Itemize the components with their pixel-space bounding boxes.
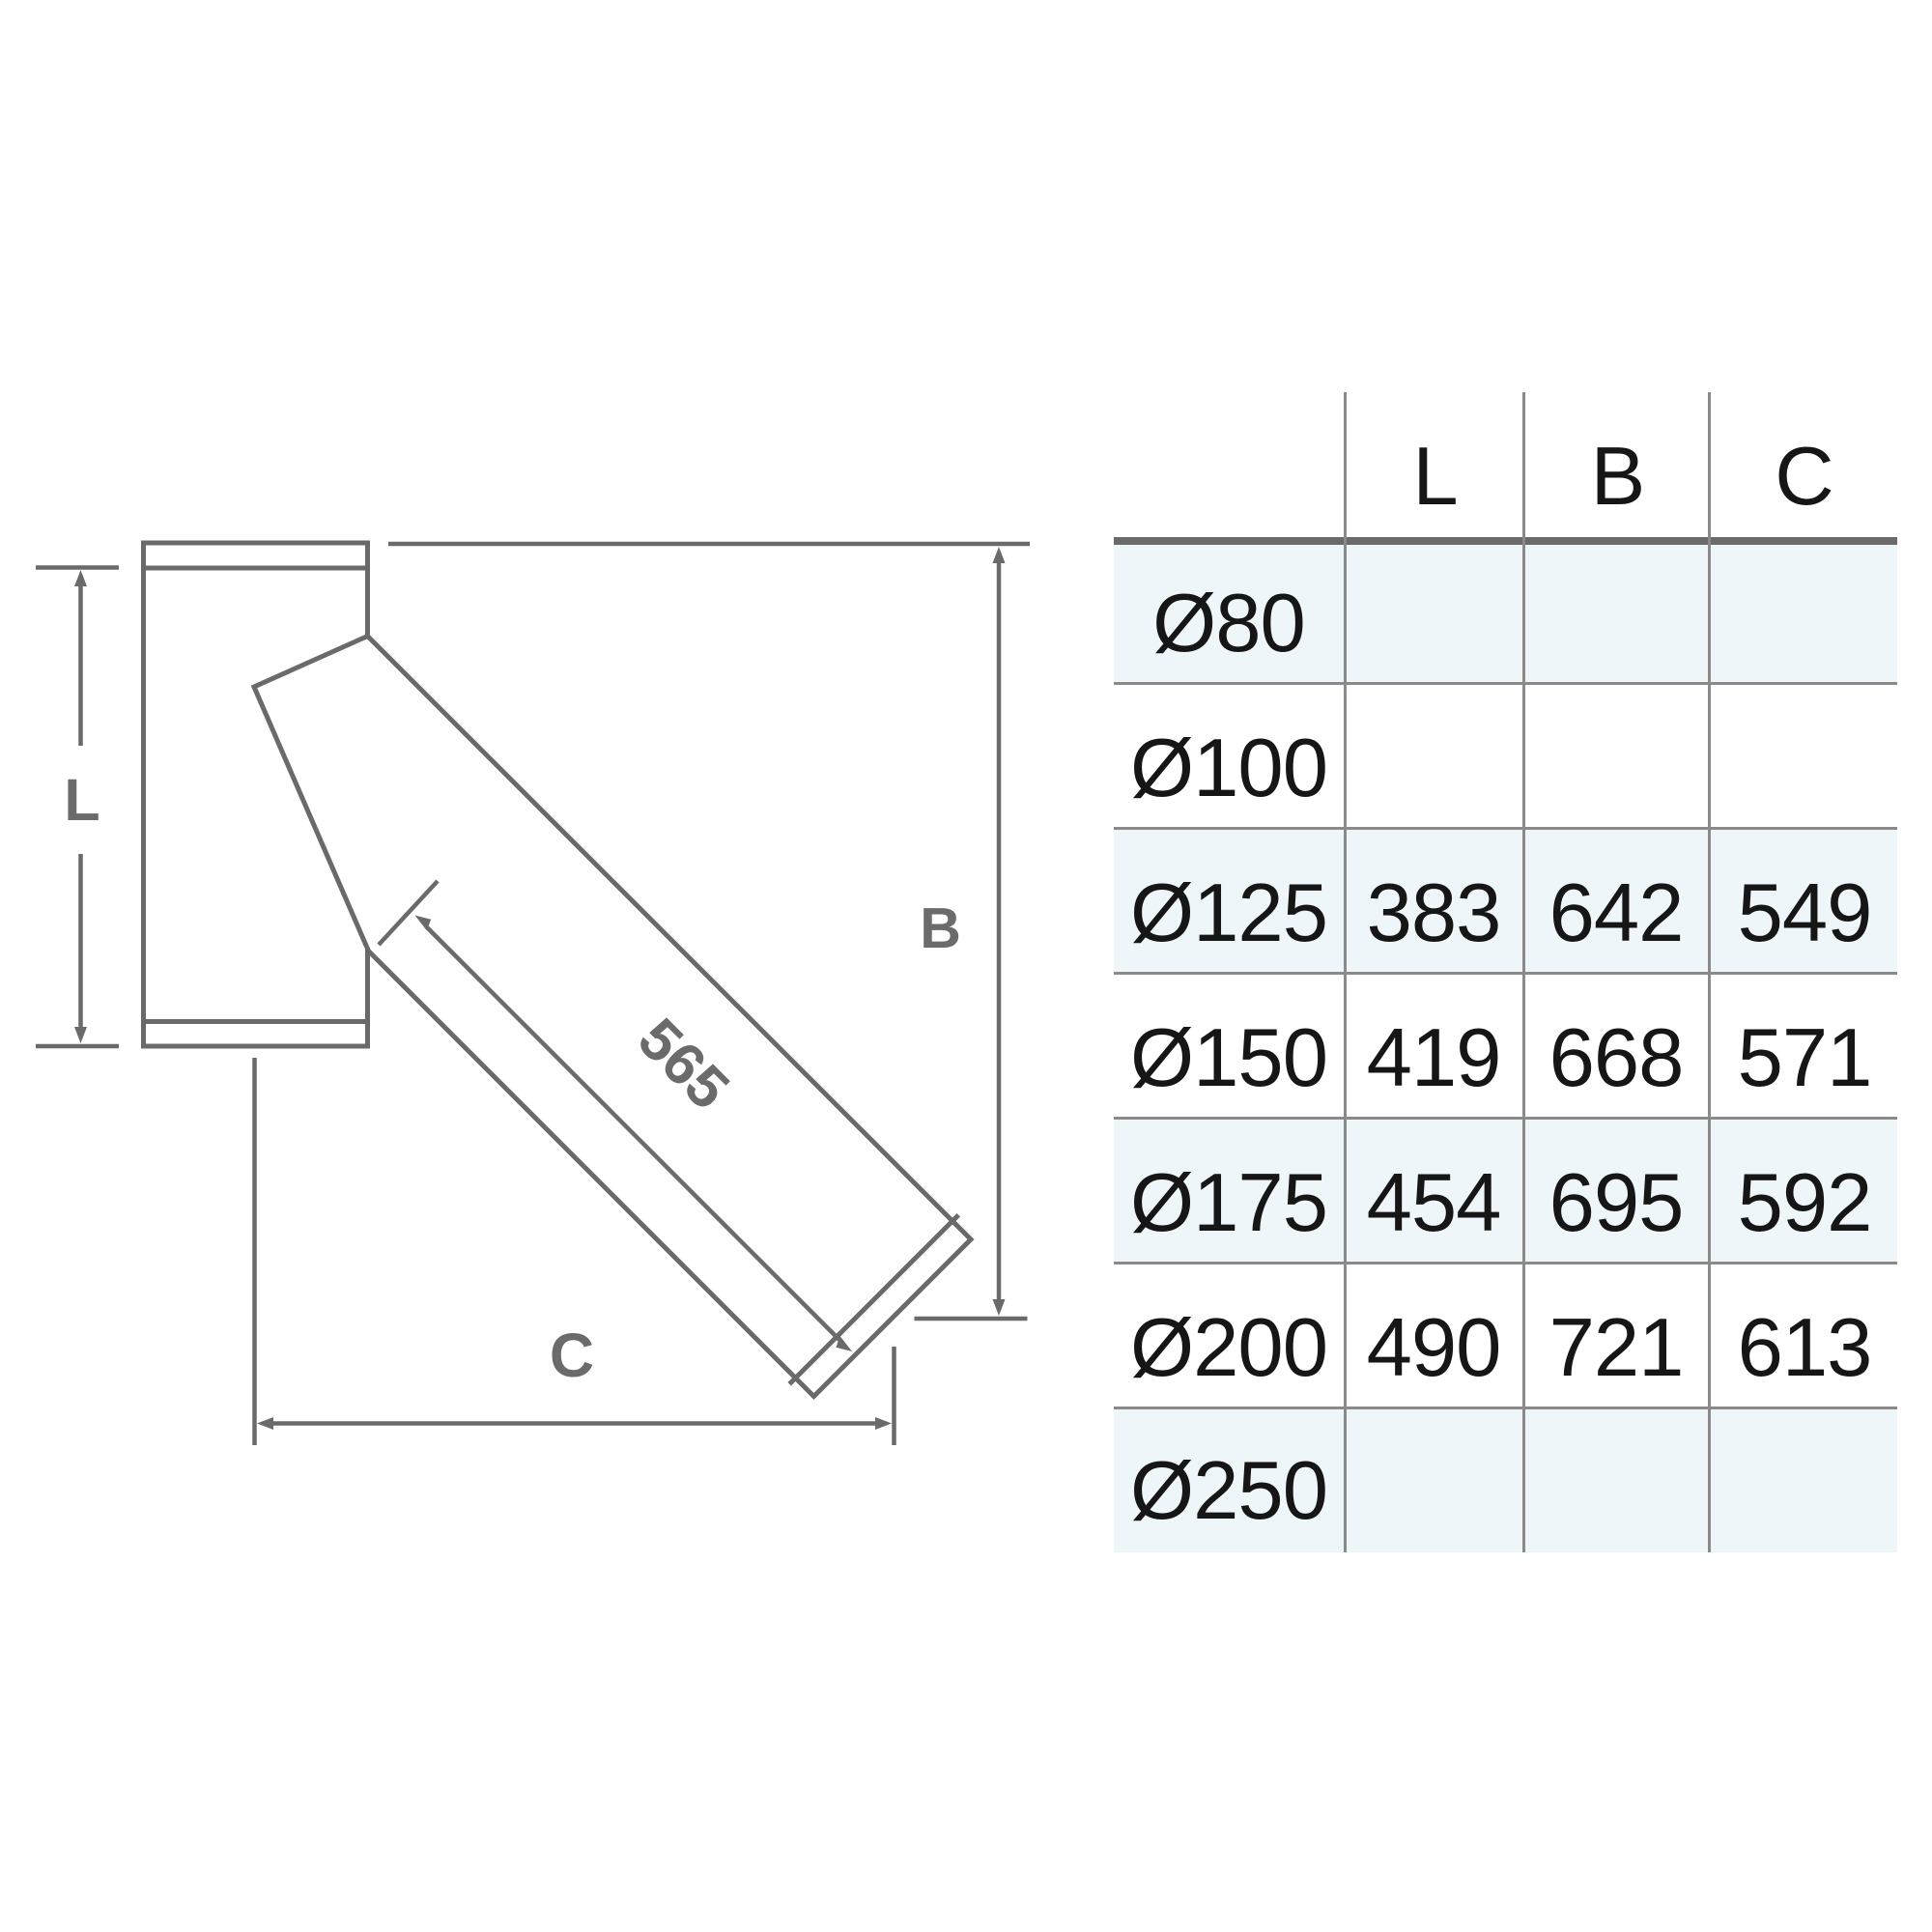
svg-text:C: C [550, 1321, 594, 1390]
svg-text:565: 565 [626, 1006, 742, 1122]
svg-text:L: L [64, 767, 99, 833]
svg-text:B: B [920, 896, 961, 960]
